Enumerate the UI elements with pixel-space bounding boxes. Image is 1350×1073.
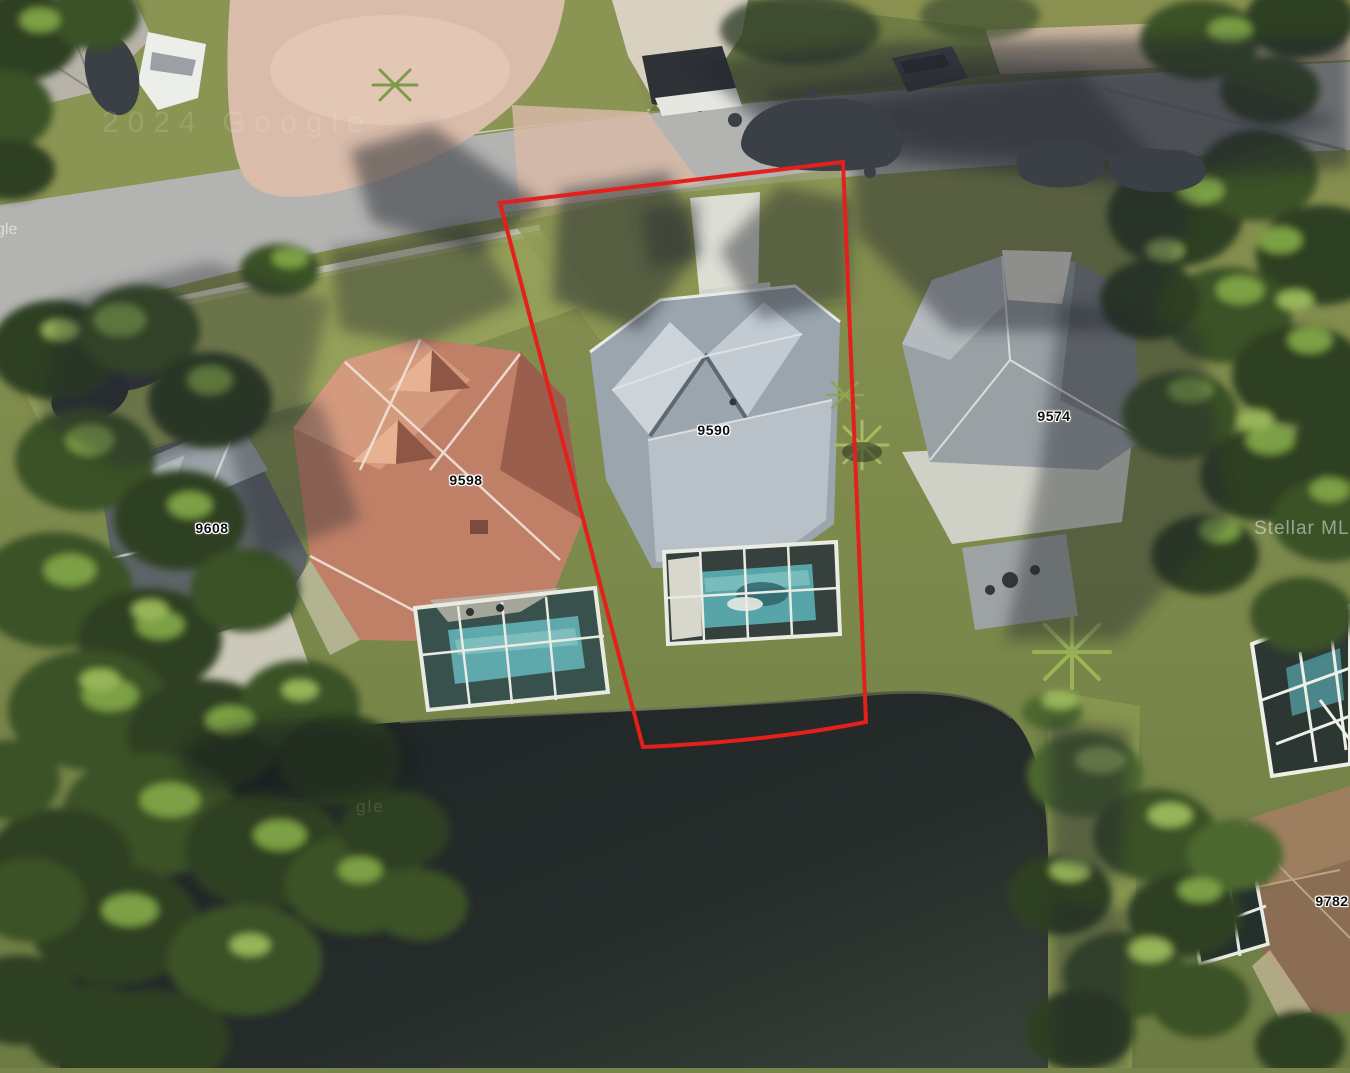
- parcel-label-9608: 9608: [195, 520, 228, 536]
- parcel-label-9782: 9782: [1315, 893, 1348, 909]
- pool-9590: [664, 542, 840, 644]
- pool-9598: [415, 588, 608, 710]
- parcel-label-9574: 9574: [1037, 408, 1070, 424]
- aerial-photo: .t1{fill:#2d3f24}.t2{fill:#3a5128}.t3{fi…: [0, 0, 1350, 1068]
- parcel-label-9598: 9598: [449, 472, 482, 488]
- parcel-label-9590: 9590: [697, 422, 730, 438]
